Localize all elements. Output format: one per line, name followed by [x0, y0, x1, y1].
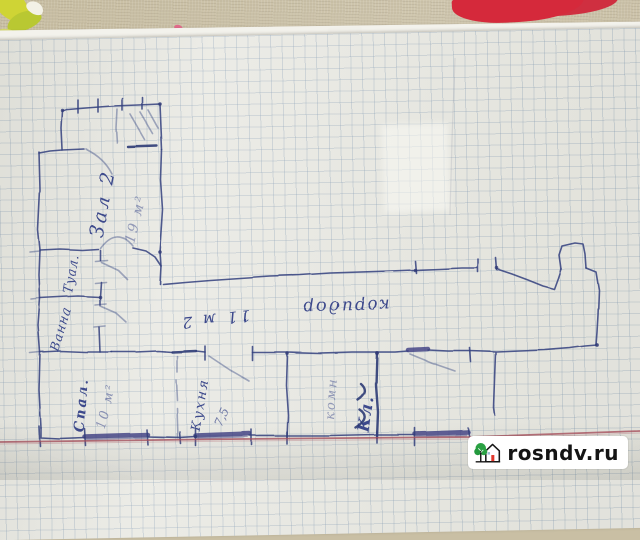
wall	[428, 345, 597, 352]
room-area-kitchen: 7,5	[212, 406, 233, 429]
wall	[116, 109, 117, 143]
wall	[61, 104, 160, 149]
room-label-zal: Зал 2	[85, 168, 120, 239]
wall	[40, 351, 112, 352]
room-label-toilet: Туал.	[60, 253, 81, 295]
wall	[99, 250, 101, 352]
floor-plan-sketch: Зал 2 19 м² Туал. Ванна коридор 11 м 2 С…	[0, 0, 640, 480]
page-crease	[450, 58, 455, 215]
tree-house-logo-icon	[474, 439, 501, 466]
wall	[163, 270, 414, 284]
window-hatch	[196, 434, 250, 436]
room-area-corridor: 11 м 2	[178, 306, 252, 332]
wall	[148, 437, 196, 438]
room-label-komn: комн	[323, 377, 340, 421]
wall	[38, 152, 41, 428]
room-label-bedroom: Спал.	[72, 377, 92, 433]
ink-dot	[98, 295, 102, 299]
ink-dot	[495, 266, 499, 270]
room-label-bath: Ванна	[46, 305, 74, 354]
ink-dot	[194, 435, 198, 439]
room-area-zal: 19 м²	[122, 193, 149, 245]
wall	[62, 149, 84, 150]
door-jamb	[478, 258, 497, 272]
door-swing	[100, 262, 127, 322]
ink-dot	[413, 268, 417, 272]
wall	[250, 435, 415, 436]
door-hatch	[172, 351, 196, 352]
door-swing	[209, 356, 249, 381]
wall	[415, 268, 477, 270]
wall	[160, 104, 162, 150]
door-swing	[410, 354, 455, 371]
ink-dot	[158, 250, 162, 254]
window-hatch	[415, 432, 468, 434]
window-hatch	[85, 435, 148, 437]
wall	[586, 268, 599, 345]
ink-dot	[375, 351, 379, 355]
room-label-corridor: коридор	[302, 295, 391, 318]
room-area-bedroom: 10 м²	[94, 382, 119, 431]
wall	[40, 296, 100, 298]
door-jamb	[470, 348, 471, 362]
watermark: rosndv.ru	[468, 436, 628, 469]
ink-dot	[595, 343, 599, 347]
ink-dot	[285, 351, 289, 355]
wall	[252, 351, 408, 353]
door-hatch	[408, 349, 428, 350]
watermark-text: rosndv.ru	[507, 441, 619, 465]
wall	[376, 353, 378, 438]
ink-dot	[158, 102, 162, 106]
wall-niche	[559, 243, 586, 269]
room-label-kitchen: Кухня	[188, 377, 212, 434]
ink-dot	[60, 108, 63, 111]
wall	[286, 353, 288, 438]
wall	[133, 248, 161, 266]
door-hatch	[130, 110, 158, 140]
wall	[39, 150, 62, 153]
wall	[128, 146, 157, 147]
wall	[494, 353, 496, 415]
wall	[112, 351, 172, 352]
wall	[40, 249, 98, 250]
wall	[497, 269, 561, 289]
wall	[196, 351, 205, 352]
wall	[176, 356, 178, 438]
